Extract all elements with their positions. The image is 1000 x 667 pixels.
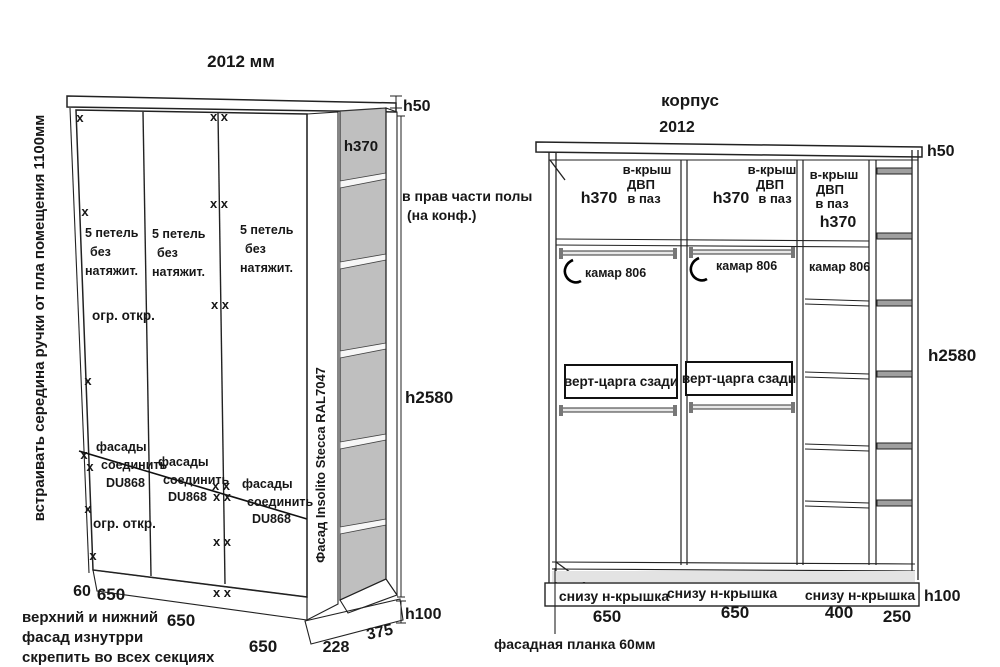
door3-hinge-note: 5 петель без натяжит. [240,223,294,275]
facade-join-note-3: фасады соединить DU868 [242,477,314,526]
rod [691,250,793,254]
top-label-line: в-крыш [810,167,859,182]
door-divider-1 [143,112,151,576]
hinge-mark: x [81,204,89,219]
hinge-note-line: натяжит. [152,265,205,279]
hinge-mark: x [76,110,84,125]
rod [691,405,793,409]
carcass-h100-label: h100 [924,588,961,605]
rod [561,251,675,255]
plinth-label-3: снизу н-крышка [805,587,915,603]
shelf-front [877,300,912,306]
section3-shelves [805,299,869,508]
join-note-line: фасады [96,440,147,454]
facade-strip-note: фасадная планка 60мм [494,636,656,652]
shelf-front [877,500,912,506]
hinge-note-line: 5 петель [240,223,294,237]
hinge-note-line: натяжит. [240,261,293,275]
carcass-title: корпус [661,91,719,110]
hinge-note-line: натяжит. [85,264,138,278]
hinge-mark-pair: x x [211,297,230,312]
section1-top-label: в-крыш ДВП в паз h370 [581,162,672,207]
right-side-panel [386,108,397,595]
rod-label-3: камар 806 [809,260,870,274]
facade-join-note-1: фасады соединить DU868 [96,440,168,490]
handle-height-note: встраивать середина ручки от пла помещен… [31,115,48,522]
section4-shelves [877,168,912,506]
top-shelf-lines [556,239,869,247]
shelf-front [877,371,912,377]
plinth-label-1: снизу н-крышка [559,588,669,604]
facade-view: 2012 мм встраивать середина ручки от пла… [22,52,532,666]
rod-hook-icon [565,260,581,282]
section3-top-label: в-крыш ДВП в паз h370 [810,167,859,231]
stile-facade-label: Фасад Insolito Stecca RAL7047 [313,367,328,563]
hinge-mark-pair: x x [210,109,229,124]
h370-label: h370 [344,138,378,155]
rod [561,408,675,412]
dim-650-s1: 650 [593,607,621,626]
join-note-line: фасады [242,477,293,491]
top-label-line: ДВП [756,177,784,192]
join-note-line: DU868 [252,512,291,526]
right-parts-note-line1: в прав части полы [402,188,532,204]
section3-h370: h370 [820,214,857,231]
dim-60: 60 [73,583,91,600]
hinge-mark-pair: x x [210,196,229,211]
top-label-line: в паз [627,191,661,206]
crossbar-label-1: верт-царга сзади [564,374,678,389]
top-label-line: в паз [758,191,792,206]
hinge-note-line: 5 петель [85,226,139,240]
rod-end-cap [673,248,677,259]
rod-label-2: камар 806 [716,259,777,273]
facade-width-label: 2012 мм [207,52,275,71]
door1-hinge-note: 5 петель без натяжит. [85,226,139,278]
top-label-line: ДВП [627,177,655,192]
crossbar-label-2: верт-царга сзади [682,371,796,386]
top-label-line: в-крыш [623,162,672,177]
bottom-note-line: фасад изнутрри [22,629,143,646]
rod-end-cap [559,405,563,416]
hinge-mark: x [84,373,92,388]
rod-end-cap [791,402,795,413]
opening-limiter-note-1: огр. откр. [92,308,155,323]
rod-end-cap [791,247,795,258]
rod-end-cap [559,248,563,259]
plinth-label-2: снизу н-крышка [667,585,777,601]
rod-hook-icon [691,258,707,280]
h2580-label: h2580 [405,388,453,407]
shelf-front [877,443,912,449]
right-parts-note-line2: (на конф.) [407,207,476,223]
hinge-mark: x [86,459,94,474]
shelf-front [877,168,912,174]
hinge-mark-pair: x x [213,585,232,600]
dim-375: 375 [365,621,395,643]
bottom-note-line: скрепить во всех секциях [22,649,215,666]
height-dimension-line [390,96,406,623]
section1-h370: h370 [581,190,618,207]
dim-650-s2: 650 [721,603,749,622]
carcass-view: корпус 2012 h50 h2580 h100 в-крыш ДВП в … [494,91,976,652]
dim-650-1: 650 [97,585,125,604]
dim-250-s4: 250 [883,607,911,626]
bottom-note-line: верхний и нижний [22,609,158,626]
join-note-line: фасады [158,455,209,469]
h50-label: h50 [403,98,431,115]
carcass-top-cap [536,142,922,157]
opening-limiter-note-2: огр. откр. [93,516,156,531]
dim-650-3: 650 [249,637,277,656]
top-label-line: ДВП [816,182,844,197]
dim-650-2: 650 [167,611,195,630]
top-cap-panel [67,96,396,112]
shelf-front [877,233,912,239]
door-divider-2 [218,113,225,584]
hinge-mark: x [84,501,92,516]
hinge-note-line: 5 петель [152,227,206,241]
drawing-svg: 2012 мм встраивать середина ручки от пла… [0,0,1000,667]
bottom-panel-face [552,571,915,582]
top-label-line: в паз [815,196,849,211]
hinge-mark: x [89,548,97,563]
hinge-note-line: без [245,242,266,256]
section2-top-label: в-крыш ДВП в паз h370 [713,162,797,207]
hinge-note-line: без [157,246,178,260]
join-note-line: DU868 [168,490,207,504]
carcass-h50-label: h50 [927,143,955,160]
join-note-line: соединить [247,495,314,509]
carcass-width-label: 2012 [659,119,695,136]
hinge-mark-pair: x x [213,534,232,549]
hinge-note-line: без [90,245,111,259]
rod-end-cap [689,402,693,413]
top-label-line: в-крыш [748,162,797,177]
door2-hinge-note: 5 петель без натяжит. [152,227,206,279]
rod-label-1: камар 806 [585,266,646,280]
join-note-line: DU868 [106,476,145,490]
hinge-mark-pair: x x [213,489,232,504]
rod-end-cap [673,405,677,416]
section2-h370: h370 [713,190,750,207]
wardrobe-technical-drawing: 2012 мм встраивать середина ручки от пла… [0,0,1000,667]
rod-end-cap [689,247,693,258]
dim-400-s3: 400 [825,603,853,622]
h100-label: h100 [405,606,442,623]
dim-228: 228 [323,639,350,656]
carcass-h2580-label: h2580 [928,346,976,365]
